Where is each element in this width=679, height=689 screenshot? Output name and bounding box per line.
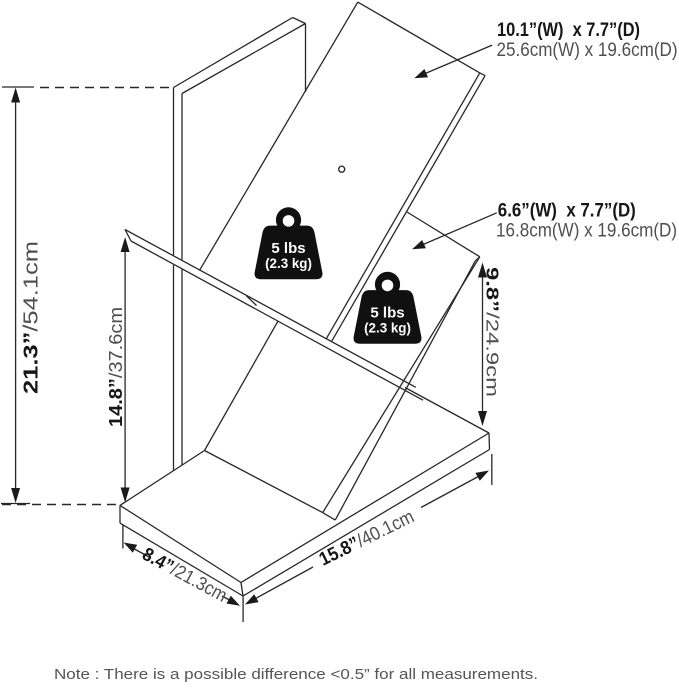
svg-text:16.8cm(W) x 19.6cm(D): 16.8cm(W) x 19.6cm(D) xyxy=(496,221,677,242)
svg-text:(2.3 kg): (2.3 kg) xyxy=(364,321,411,336)
svg-text:5 lbs: 5 lbs xyxy=(271,240,305,257)
svg-text:21.3”/54.1cm: 21.3”/54.1cm xyxy=(21,241,43,394)
svg-text:Note : There is a possible dif: Note : There is a possible difference <0… xyxy=(54,666,538,683)
svg-text:9.8”/24.9cm: 9.8”/24.9cm xyxy=(483,267,503,397)
svg-text:14.8”/37.6cm: 14.8”/37.6cm xyxy=(106,307,126,427)
svg-text:(2.3 kg): (2.3 kg) xyxy=(265,256,312,271)
svg-text:10.1”(W) x 7.7”(D): 10.1”(W) x 7.7”(D) xyxy=(497,20,640,41)
svg-text:25.6cm(W) x 19.6cm(D): 25.6cm(W) x 19.6cm(D) xyxy=(497,40,678,61)
svg-text:6.6”(W) x 7.7”(D): 6.6”(W) x 7.7”(D) xyxy=(498,201,636,222)
svg-text:5 lbs: 5 lbs xyxy=(370,305,404,322)
